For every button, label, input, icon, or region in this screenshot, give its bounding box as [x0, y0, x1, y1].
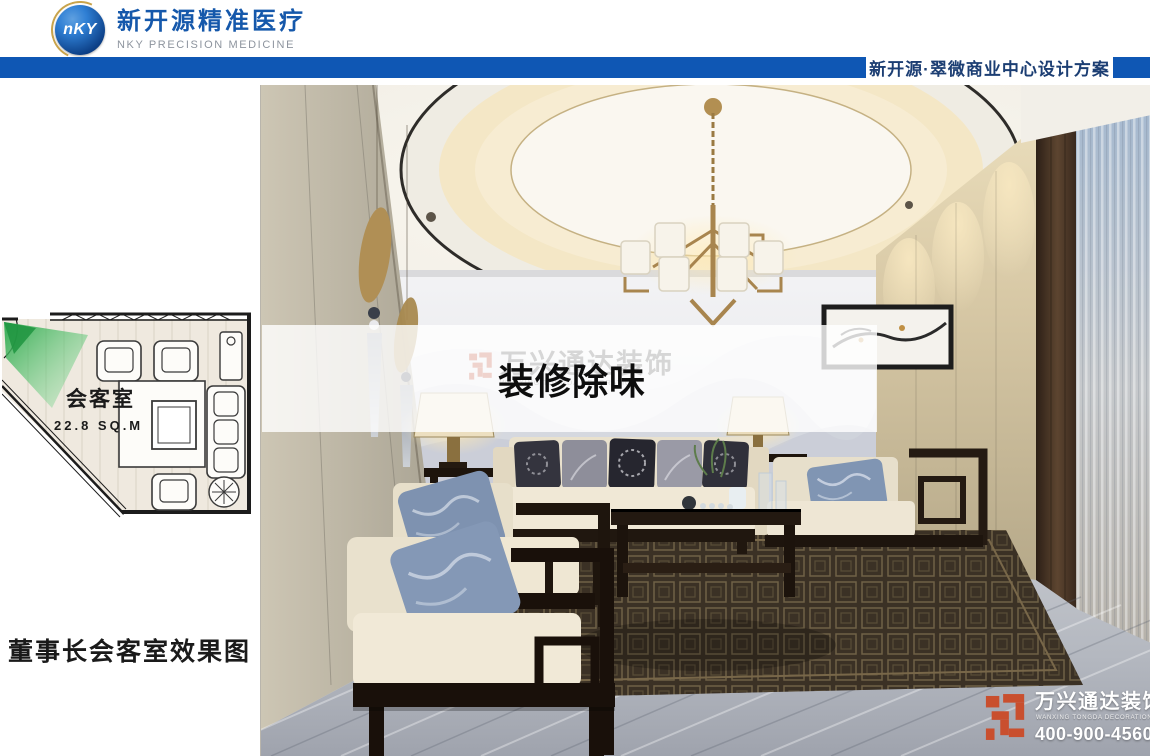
wood-column [1036, 103, 1079, 615]
project-title: 新开源·翠微商业中心设计方案 [869, 55, 1110, 80]
brand-name-en: NKY PRECISION MEDICINE [117, 39, 306, 51]
logo-monogram: nKY [63, 21, 97, 39]
plan-room-area: 22.8 SQ.M [54, 418, 143, 433]
wanxing-logo-icon [984, 692, 1028, 742]
watermark-company-en: WANXING TONGDA DECORATION [1036, 715, 1150, 721]
corner-watermark: 万兴通达装饰 WANXING TONGDA DECORATION 400-900… [984, 692, 1150, 745]
floor-plan: 会客室 22.8 SQ.M [2, 306, 254, 518]
banner-text: 装修除味 [498, 353, 646, 405]
project-title-box: 新开源·翠微商业中心设计方案 [866, 55, 1113, 80]
wanxing-logo-icon [468, 351, 494, 381]
overlay-banner: 万兴通达装饰 WANXING TONGDA DECORATION 装修除味 [262, 325, 877, 432]
watermark-phone: 400-900-4560 [1035, 724, 1150, 745]
render-caption: 董事长会客室效果图 [8, 632, 251, 668]
nky-globe-icon: nKY [55, 5, 105, 55]
slide-page: nKY 新开源精准医疗 NKY PRECISION MEDICINE 新开源·翠… [0, 0, 1150, 756]
brand-name-cn: 新开源精准医疗 [117, 9, 306, 35]
brand-block: 新开源精准医疗 NKY PRECISION MEDICINE [117, 9, 306, 50]
sofa [493, 437, 769, 554]
company-logo: nKY 新开源精准医疗 NKY PRECISION MEDICINE [55, 5, 306, 55]
plan-room-label: 会客室 [66, 387, 135, 411]
watermark-company: 万兴通达装饰 [1035, 692, 1150, 713]
